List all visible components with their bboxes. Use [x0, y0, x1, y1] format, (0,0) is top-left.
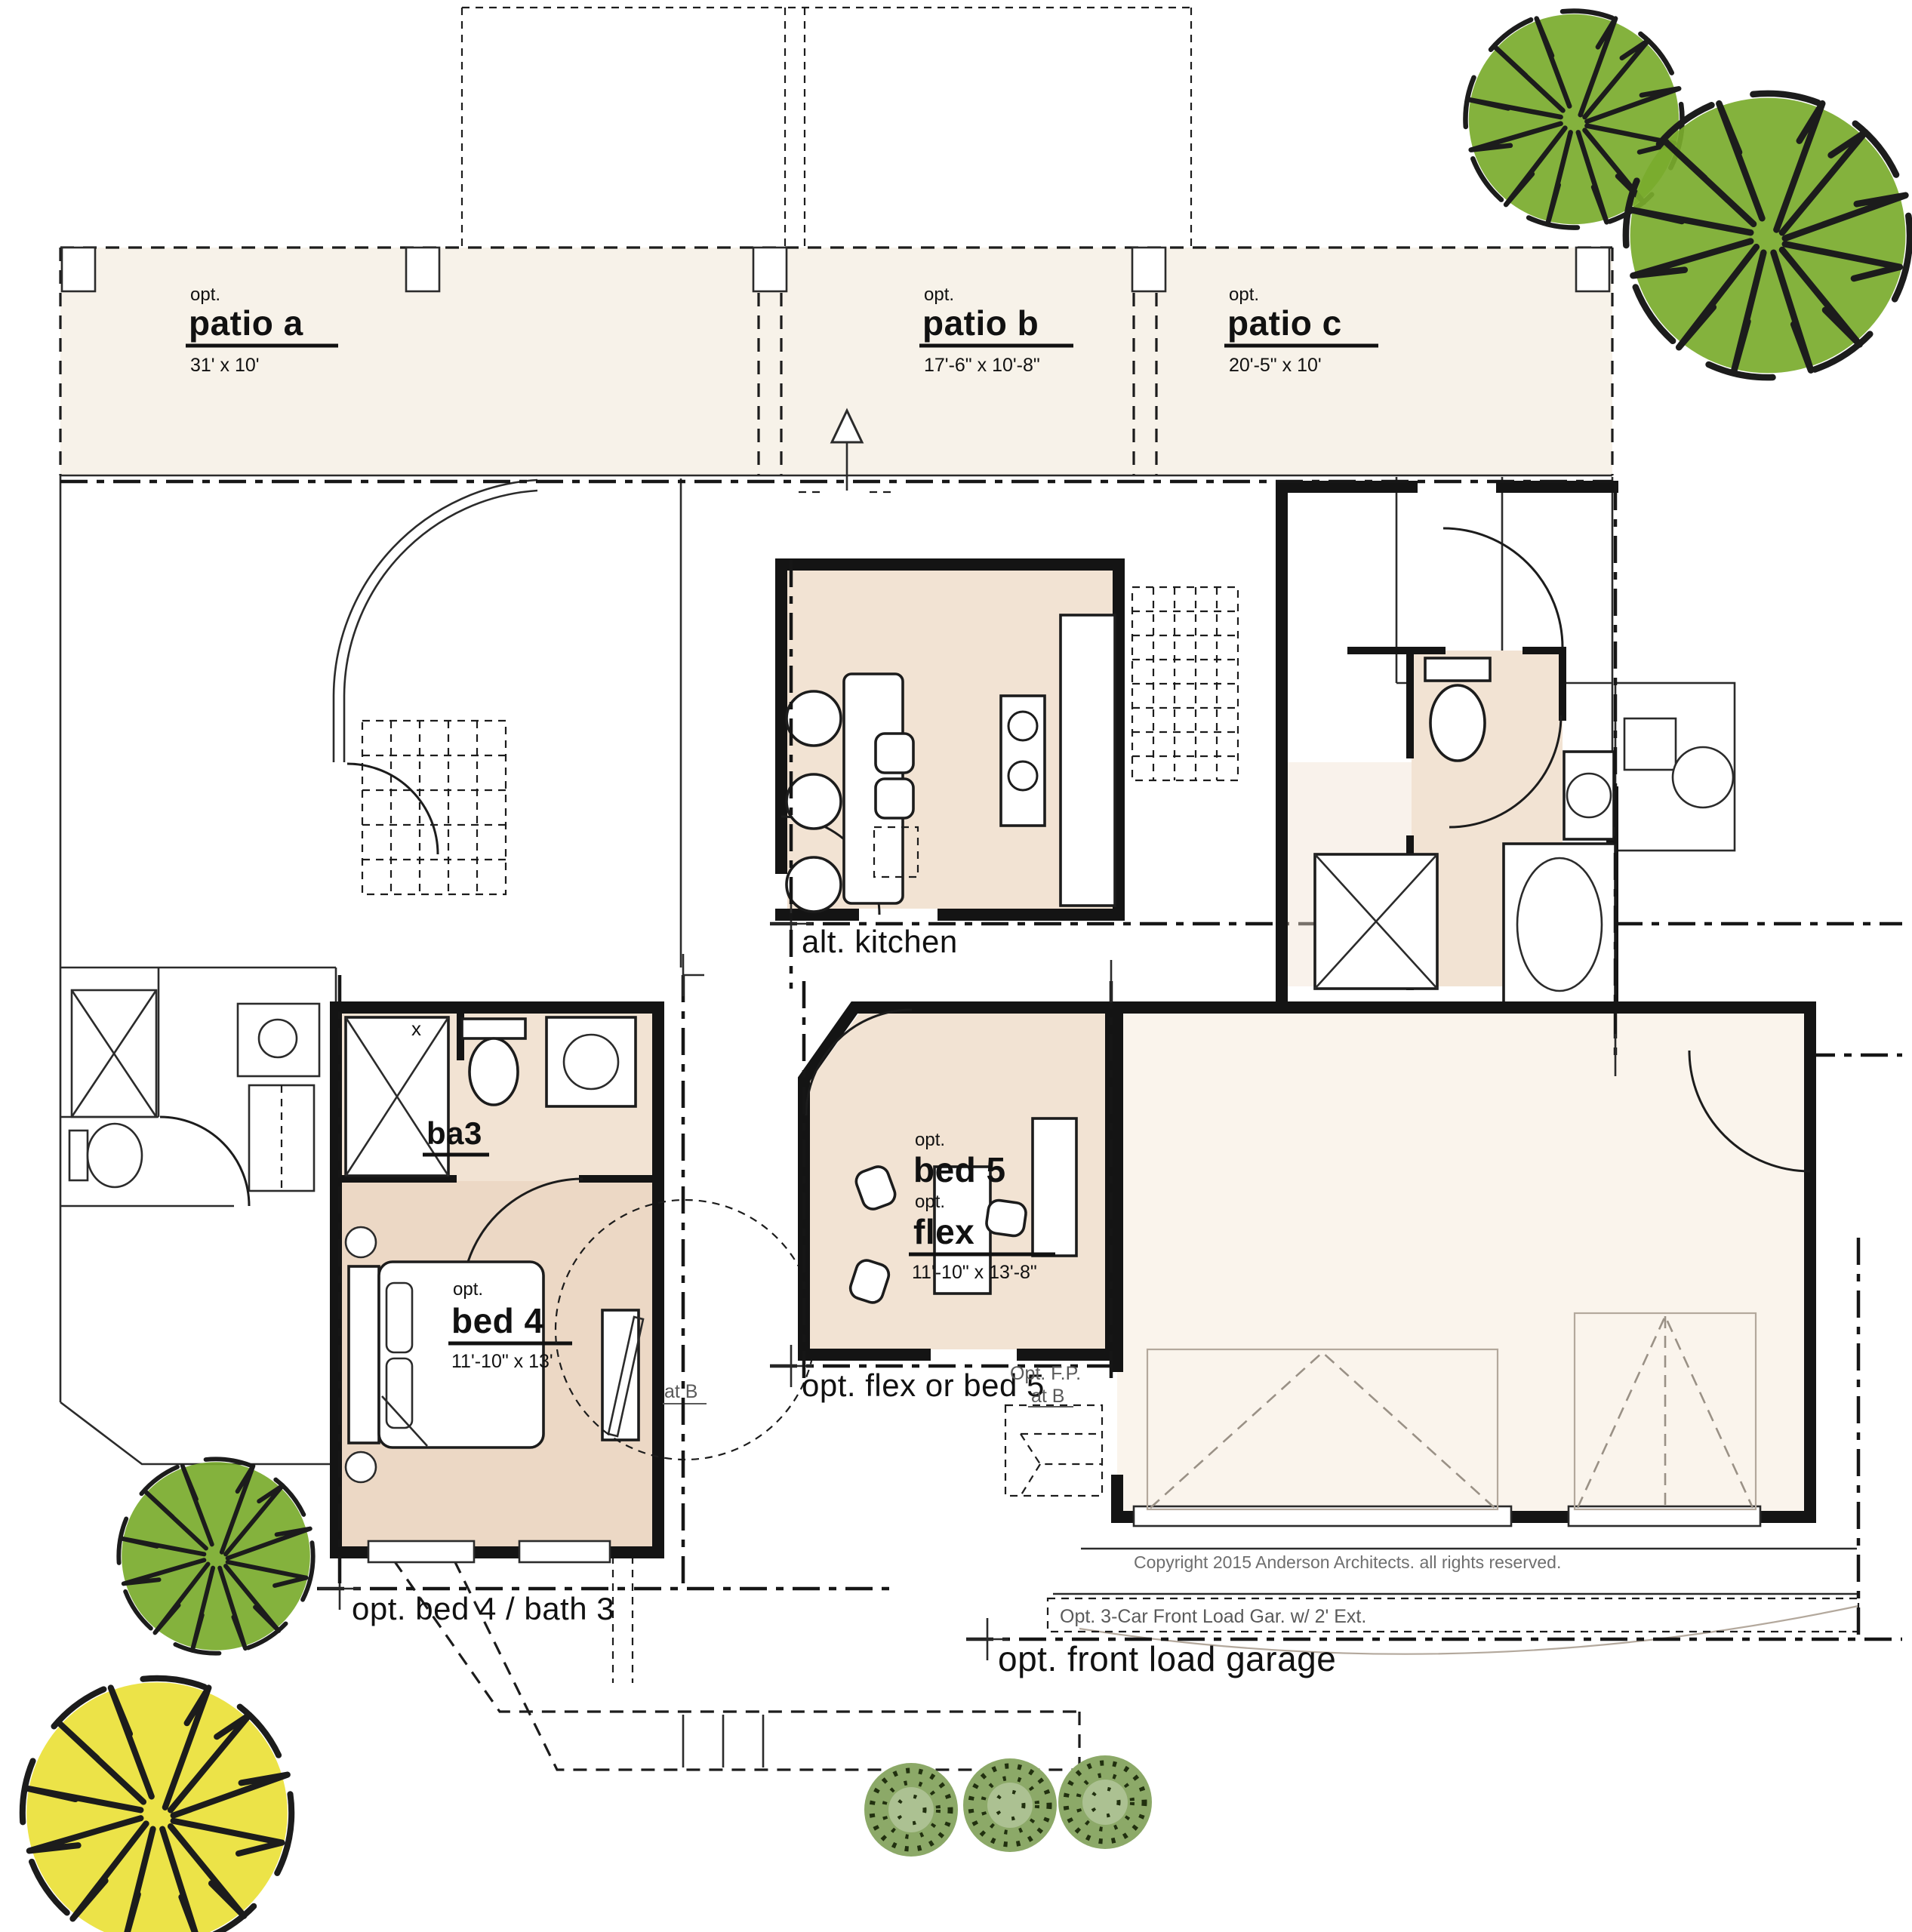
alt-owners-bath: [1282, 487, 1615, 1015]
garage-floor: [1117, 1014, 1809, 1513]
owners-tub: [1504, 844, 1615, 1005]
foyer-door-arc: [347, 764, 438, 854]
patio-b-opt: opt.: [924, 285, 954, 305]
garage: Copyright 2015 Anderson Architects. all …: [1048, 1008, 1858, 1654]
at-b-bed4-text: at B: [664, 1381, 697, 1402]
owners-shower: [1315, 854, 1437, 989]
bush-row: [864, 1755, 1152, 1857]
copyright-text: Copyright 2015 Anderson Architects. all …: [1134, 1552, 1561, 1572]
patio-extension-dashes: [462, 8, 1191, 248]
bed5-dims: 11'-10" x 13'-8": [912, 1262, 1037, 1283]
bed5-name1: bed 5: [913, 1150, 1006, 1189]
patio-band: opt. patio a 31' x 10' opt. patio b 17'-…: [60, 8, 1612, 492]
bed5-opt2: opt.: [915, 1192, 945, 1212]
ba3-sink: [547, 1017, 636, 1106]
fireplace-option: Opt. F.P. at B: [1005, 1363, 1102, 1496]
garage-ext-note: Opt. 3-Car Front Load Gar. w/ 2' Ext.: [1060, 1606, 1366, 1627]
patio-a-dims: 31' x 10': [190, 355, 260, 376]
bed5-opt1: opt.: [915, 1130, 945, 1150]
patio-c-opt: opt.: [1229, 285, 1259, 305]
bed4-name: bed 4: [451, 1301, 544, 1340]
tree-green-bottom-left: [119, 1459, 313, 1653]
fireplace-note: Opt. F.P.: [1010, 1363, 1081, 1384]
at-b-fp-note: at B: [1028, 1386, 1073, 1407]
kitchen-window-grid: [1132, 587, 1238, 780]
owners-toilet: [1425, 658, 1490, 761]
flex-gridline-label: opt. flex or bed 5: [802, 1367, 1045, 1403]
tree-yellow-bottom-left: [23, 1678, 291, 1932]
patio-a-opt: opt.: [190, 285, 220, 305]
garage-gridline: opt. front load garage: [966, 1618, 1902, 1678]
bed4-dresser: [602, 1310, 643, 1440]
ba3-label: ba3: [426, 1115, 482, 1151]
patio-c-dims: 20'-5" x 10': [1229, 355, 1322, 376]
patio-b-dims: 17'-6" x 10'-8": [924, 355, 1040, 376]
wall-x-marker: x: [411, 1017, 421, 1040]
bed5-desk: [1033, 1118, 1076, 1256]
alt-kitchen: [781, 565, 1238, 915]
patio-c-name: patio c: [1227, 303, 1342, 343]
media-niche: [362, 721, 506, 894]
bed4-gridline-label: opt. bed 4 / bath 3: [352, 1591, 614, 1626]
patio-a-name: patio a: [189, 303, 303, 343]
ba3-shower: [346, 1017, 448, 1176]
bed4-window-1: [368, 1541, 474, 1562]
owners-vanity: [1564, 752, 1614, 839]
tree-green-large-top: [1626, 94, 1910, 377]
bed4-window-2: [519, 1541, 610, 1562]
bed5-name2: flex: [913, 1212, 974, 1251]
bed4-ba3-suite: ba3 x opt. bed 4 11'-10" x 13' at B: [336, 1008, 815, 1562]
garage-gridline-label: opt. front load garage: [998, 1639, 1336, 1678]
bed4-dims: 11'-10" x 13': [451, 1351, 553, 1372]
kitchen-label: alt. kitchen: [802, 924, 958, 959]
bed4-opt: opt.: [453, 1279, 483, 1300]
at-b-fp-text: at B: [1031, 1386, 1064, 1407]
bed5-flex-room: opt. bed 5 opt. flex 11'-10" x 13'-8": [804, 1008, 1111, 1355]
bed4-gridline: opt. bed 4 / bath 3: [317, 1567, 891, 1626]
kitchen-island: [787, 674, 918, 912]
patio-b-name: patio b: [922, 303, 1039, 343]
